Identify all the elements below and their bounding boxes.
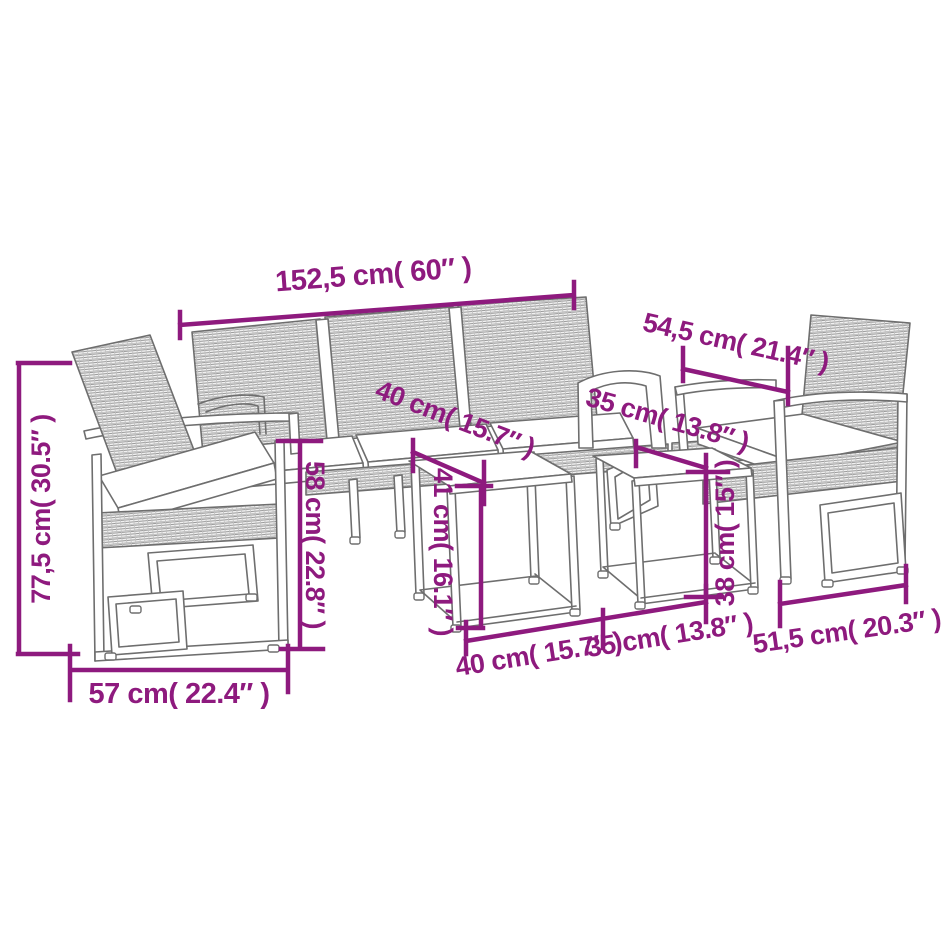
sofa-foot <box>610 523 620 530</box>
sofa-back-panel-left <box>192 319 331 454</box>
right-chair-foot <box>822 580 833 587</box>
diagram-canvas: 152,5 cm( 60″ ) 54,5 cm( 21.4″ ) 77,5 cm… <box>0 0 947 947</box>
left-chair-foot <box>105 653 116 660</box>
small-table-foot <box>598 571 608 578</box>
dimension-small-table-height-label: 38 cm( 15″ ) <box>710 460 740 607</box>
dimension-overall-height-label: 77,5 cm( 30.5″ ) <box>26 414 56 604</box>
sofa-foot <box>350 537 360 544</box>
left-chair-foot <box>130 606 141 613</box>
small-table-foot <box>635 602 645 609</box>
left-chair-frame-left-post <box>92 454 104 661</box>
sofa-foot <box>395 531 405 538</box>
sofa-back-panel-right <box>458 297 597 428</box>
dimension-armchair-width-label: 57 cm( 22.4″ ) <box>89 678 270 710</box>
left-chair-foot <box>246 594 257 601</box>
large-table-foot <box>529 577 539 584</box>
small-table-foot <box>748 587 758 594</box>
large-table-foot <box>570 609 580 616</box>
right-chair-sled-leg <box>820 493 906 583</box>
left-chair-foot <box>268 645 279 652</box>
large-table-foot <box>414 593 424 600</box>
dimension-seat-back-height-label: 58 cm( 22.8″ ) <box>300 461 330 629</box>
dimension-large-table-height-label: 41 cm( 16.1″ ) <box>428 468 458 636</box>
furniture-dimension-diagram: 152,5 cm( 60″ ) 54,5 cm( 21.4″ ) 77,5 cm… <box>0 0 947 947</box>
